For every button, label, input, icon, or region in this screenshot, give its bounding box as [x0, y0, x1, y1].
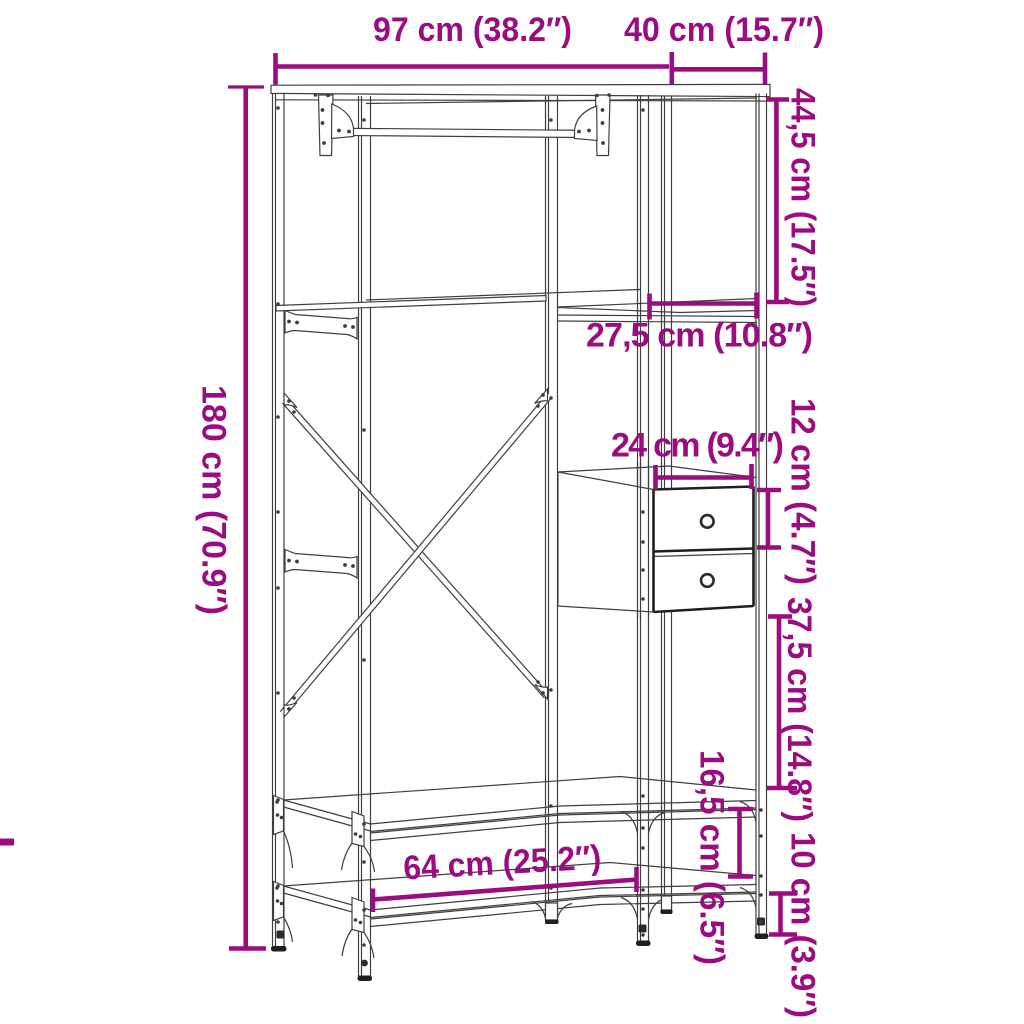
svg-text:27,5 cm (10.8″): 27,5 cm (10.8″): [586, 317, 813, 355]
svg-text:37,5 cm (14.8″): 37,5 cm (14.8″): [780, 597, 818, 822]
svg-text:24 cm (9.4″): 24 cm (9.4″): [611, 427, 784, 465]
svg-text:44,5 cm (17.5″): 44,5 cm (17.5″): [784, 88, 822, 307]
svg-text:40 cm (15.7″): 40 cm (15.7″): [624, 11, 824, 49]
svg-text:12 cm (4.7″): 12 cm (4.7″): [784, 398, 822, 585]
svg-text:180 cm (70.9″): 180 cm (70.9″): [195, 385, 233, 615]
svg-text:97 cm (38.2″): 97 cm (38.2″): [373, 11, 572, 49]
svg-text:10 cm (3.9″): 10 cm (3.9″): [784, 832, 822, 1018]
svg-text:16,5 cm (6.5″): 16,5 cm (6.5″): [693, 750, 731, 965]
